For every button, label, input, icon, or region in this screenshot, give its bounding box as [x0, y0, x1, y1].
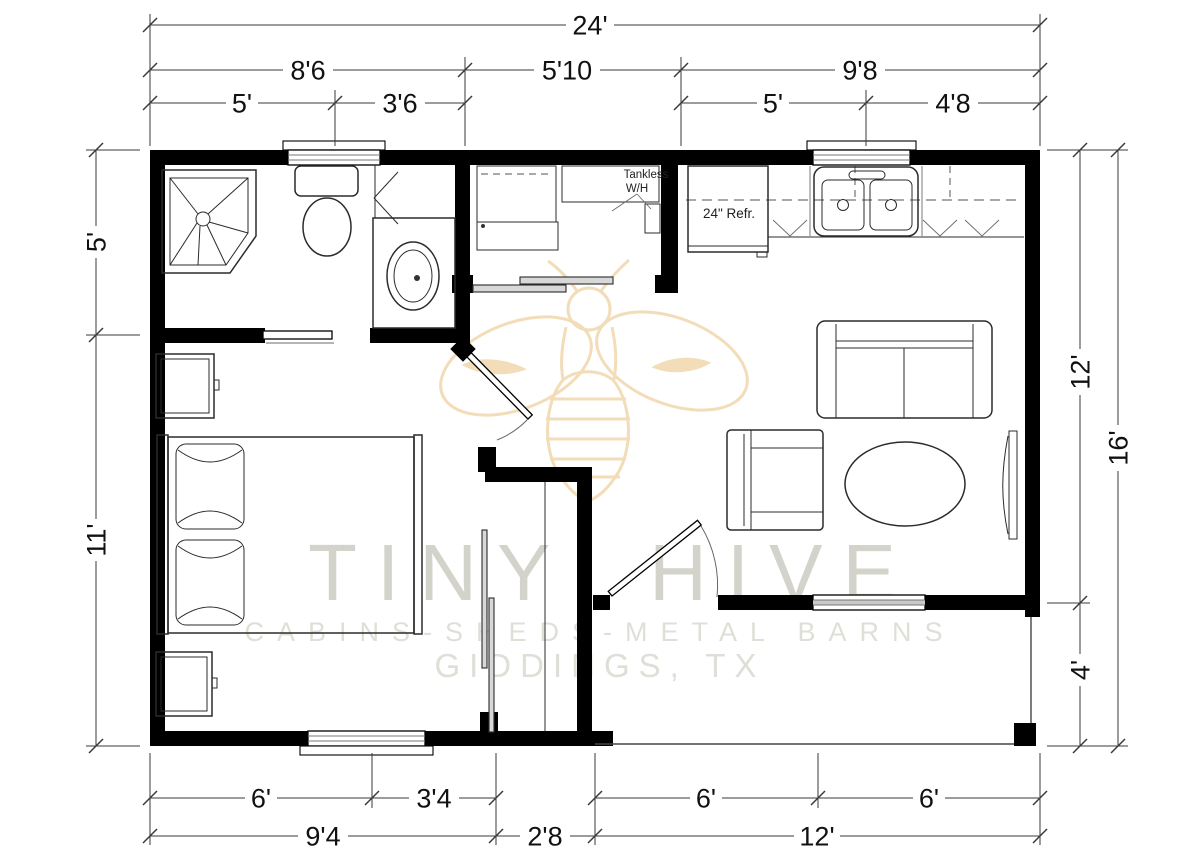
utility-closet-sliding-doors [473, 277, 613, 292]
pillow [176, 540, 244, 625]
bee-antenna-right [601, 260, 629, 291]
tankless-label-line1: Tankless [624, 169, 669, 181]
nightstand-top [156, 354, 219, 418]
dimension-label: 5' [763, 88, 783, 118]
dimension-label: 12' [799, 821, 834, 851]
dimensions-right: 12' 4' 16' [1047, 143, 1133, 753]
dimension-label: 5' [81, 226, 111, 258]
svg-text:4': 4' [1065, 660, 1095, 680]
dimension-label: 6' [251, 783, 271, 813]
refrigerator: 24" Refr. [688, 166, 768, 257]
pillow [176, 444, 244, 529]
dimensions-bottom: 6' 3'4 6' 6' 9'4 2'8 12' [143, 753, 1047, 851]
faucet [849, 171, 885, 179]
kitchen: 24" Refr. [686, 166, 1024, 257]
bedroom-window [300, 731, 433, 755]
dimension-label: 4' [1065, 654, 1095, 686]
dimension-label: 16' [1103, 425, 1133, 471]
kitchen-sink [814, 167, 918, 236]
bathroom-window [283, 141, 385, 165]
dimension-label: 3'6 [382, 88, 417, 118]
shower-drain [196, 212, 210, 226]
vanity-sink [373, 165, 455, 328]
dimension-label: 3'4 [416, 783, 451, 813]
living-room [727, 321, 1017, 539]
dimension-label: 6' [696, 783, 716, 813]
bathroom-pocket-door [263, 331, 334, 343]
dimension-label: 8'6 [290, 55, 325, 85]
refrigerator-label: 24" Refr. [703, 206, 755, 221]
coffee-table [845, 442, 965, 526]
svg-text:12': 12' [1065, 354, 1095, 389]
bathroom [162, 165, 455, 328]
washer-dryer [477, 166, 558, 250]
dimension-label: 6' [919, 783, 939, 813]
living-room-window [813, 595, 925, 610]
svg-text:5': 5' [81, 232, 111, 252]
dimension-label: 5'10 [542, 55, 592, 85]
sink-drain [414, 275, 420, 281]
dimension-label: 4'8 [935, 88, 970, 118]
watermark-tagline: CABINS-SHEDS-METAL BARNS [244, 617, 955, 647]
sofa [817, 321, 992, 418]
floor-plan-page: TINY HIVE CABINS-SHEDS-METAL BARNS GIDDI… [0, 0, 1200, 855]
dimension-label: 9'8 [842, 55, 877, 85]
tankless-label-line2: W/H [626, 183, 648, 195]
svg-text:11': 11' [81, 523, 111, 556]
tv [1003, 431, 1017, 539]
utility-closet: Tankless W/H [477, 166, 669, 250]
tankless-water-heater [645, 204, 660, 233]
dimension-label: 11' [81, 519, 111, 561]
kitchen-counter [768, 166, 1024, 237]
svg-text:16': 16' [1103, 430, 1133, 465]
floor-plan-drawing: TINY HIVE CABINS-SHEDS-METAL BARNS GIDDI… [0, 0, 1200, 855]
toilet [295, 166, 358, 256]
dimension-label: 24' [572, 10, 607, 40]
dimensions-top: 24' 8'6 5'10 9'8 5' 3'6 5' 4'8 [143, 10, 1047, 146]
hall-door-swing [497, 419, 528, 440]
bee-logo [427, 260, 761, 501]
dimension-label: 5' [232, 88, 252, 118]
armchair [727, 430, 823, 530]
dimension-label: 2'8 [527, 821, 562, 851]
kitchen-window [807, 141, 916, 165]
dimension-label: 12' [1065, 349, 1095, 395]
shower [162, 170, 256, 273]
nightstand-bottom [156, 652, 217, 716]
dimensions-left: 5' 11' [81, 143, 140, 753]
dimension-label: 9'4 [305, 821, 340, 851]
